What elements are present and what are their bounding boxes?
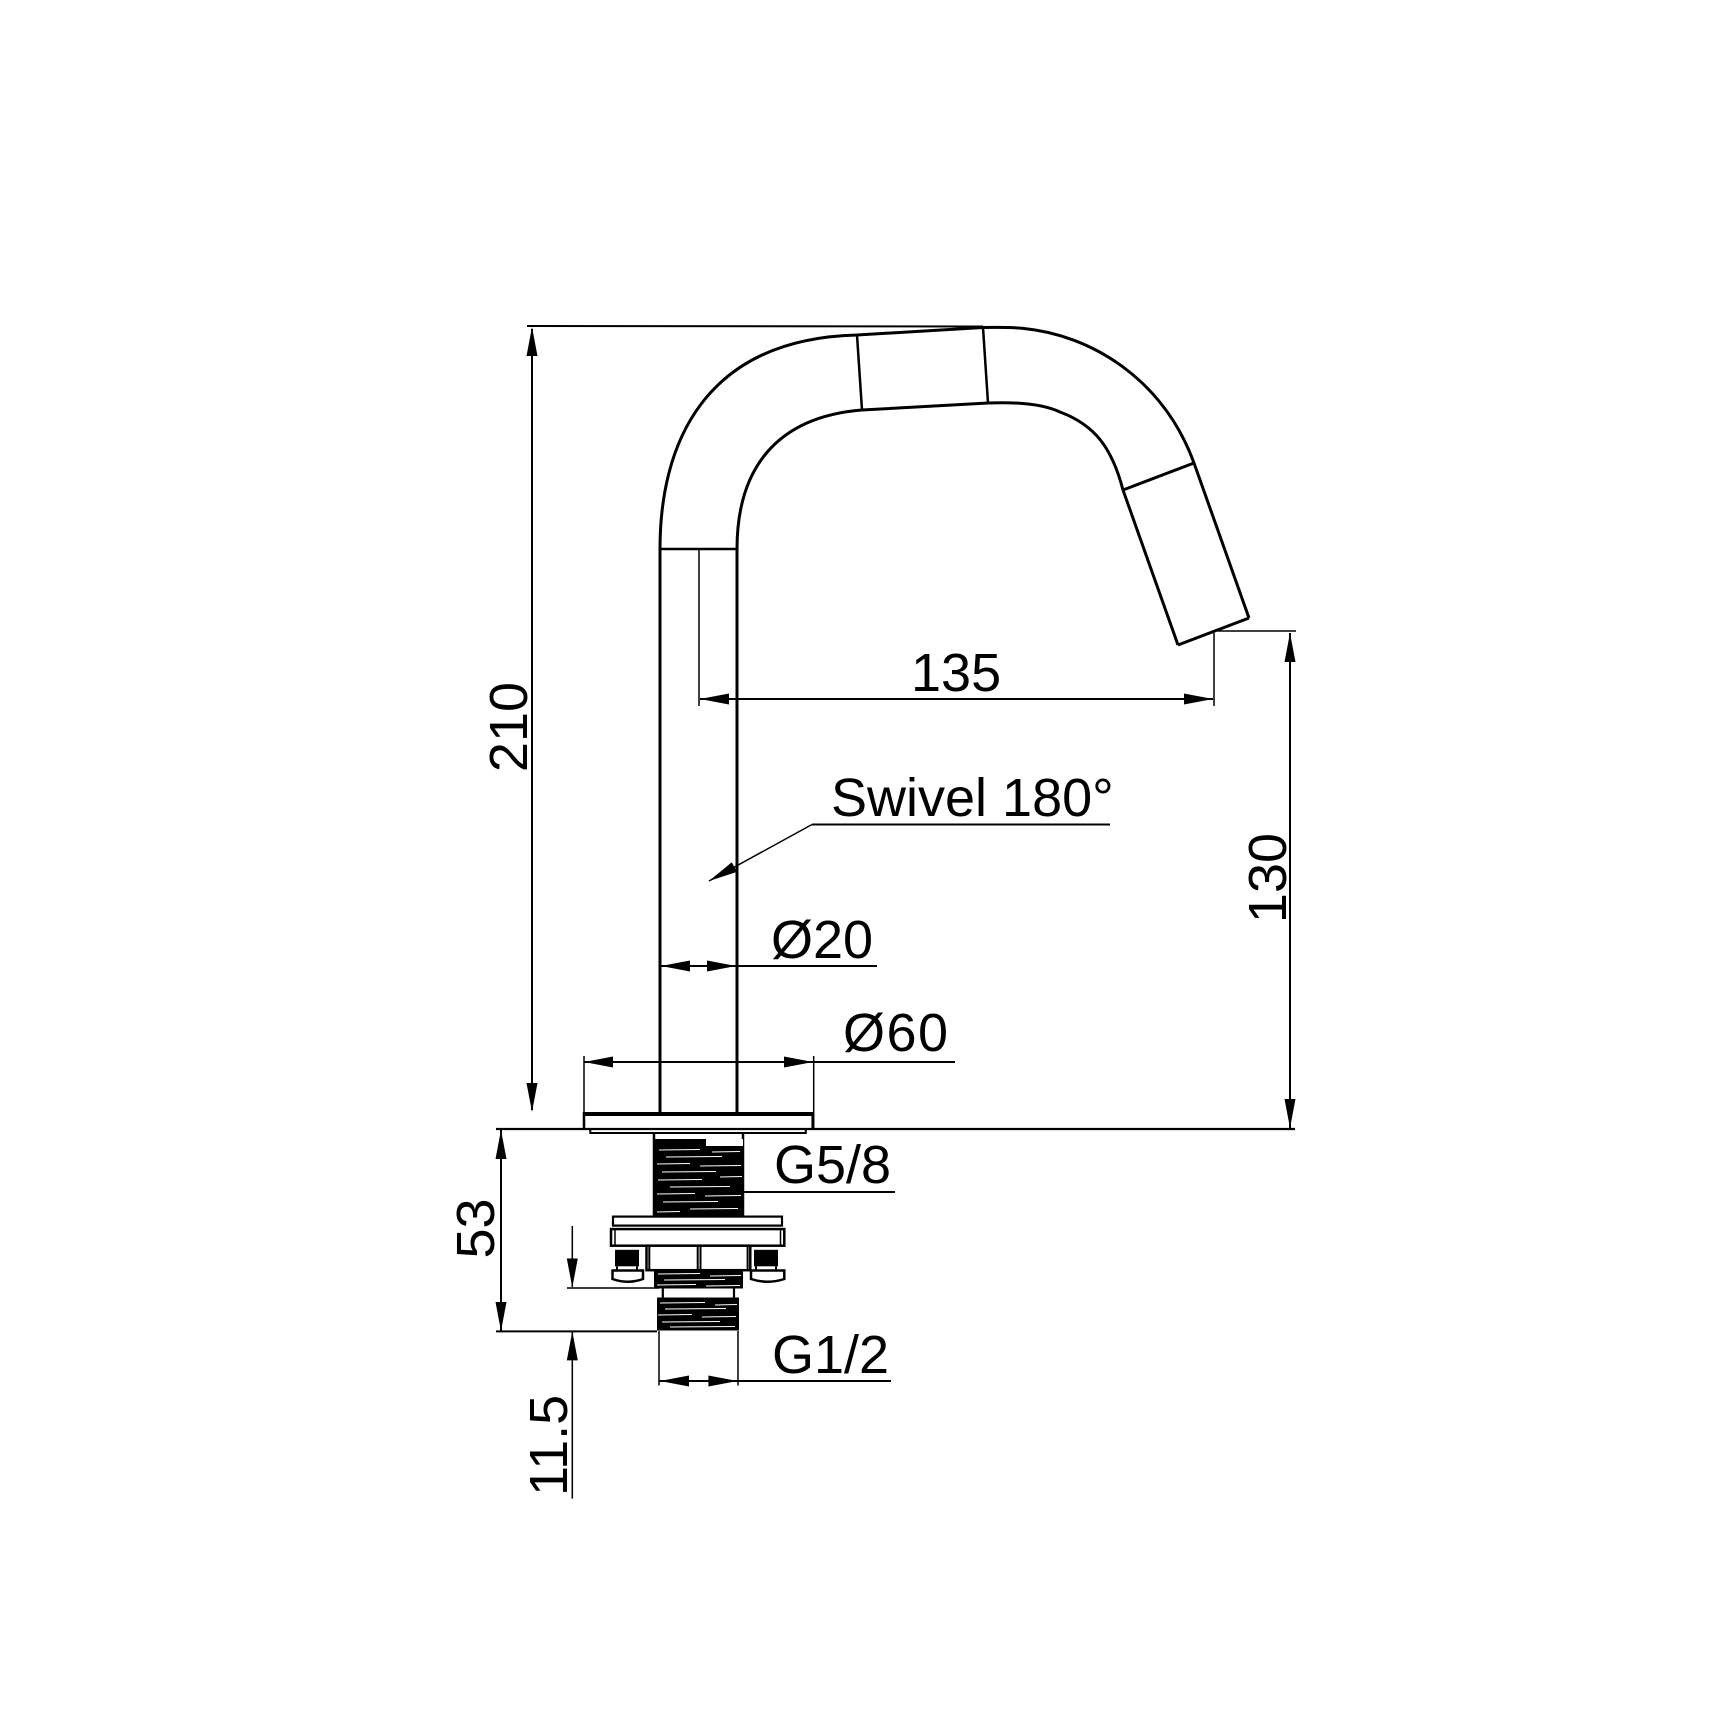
svg-text:210: 210 — [479, 682, 539, 772]
svg-text:135: 135 — [911, 643, 1001, 703]
svg-text:Ø60: Ø60 — [843, 1003, 950, 1063]
svg-text:Swivel 180°: Swivel 180° — [831, 768, 1114, 828]
svg-text:G1/2: G1/2 — [772, 1325, 889, 1385]
svg-text:11.5: 11.5 — [519, 1395, 579, 1496]
svg-text:G5/8: G5/8 — [774, 1135, 891, 1195]
svg-text:130: 130 — [1238, 833, 1298, 923]
svg-text:Ø20: Ø20 — [771, 910, 873, 970]
svg-text:53: 53 — [446, 1198, 506, 1258]
